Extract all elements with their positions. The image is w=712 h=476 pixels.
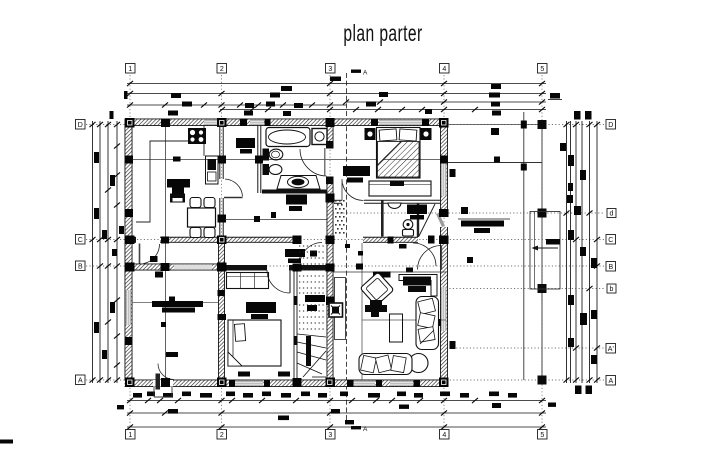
svg-text:3: 3 [328,66,332,73]
svg-text:plan parter: plan parter [343,21,422,47]
svg-text:4: 4 [442,432,446,439]
svg-text:A: A [608,378,613,385]
svg-text:3: 3 [328,432,332,439]
svg-text:2: 2 [220,432,224,439]
svg-text:B: B [78,264,83,271]
svg-text:B: B [608,264,613,271]
svg-text:A: A [363,70,368,77]
svg-text:D: D [78,122,83,129]
svg-text:b: b [610,286,614,293]
svg-text:2: 2 [220,66,224,73]
svg-text:C: C [608,237,613,244]
svg-text:A': A' [608,346,614,353]
svg-text:C: C [78,237,83,244]
svg-text:1: 1 [128,66,132,73]
svg-text:5: 5 [540,66,544,73]
svg-text:d: d [610,211,614,218]
svg-text:D: D [608,122,613,129]
svg-text:5: 5 [540,432,544,439]
svg-text:4: 4 [442,66,446,73]
svg-text:1: 1 [128,432,132,439]
svg-text:A: A [78,378,83,385]
